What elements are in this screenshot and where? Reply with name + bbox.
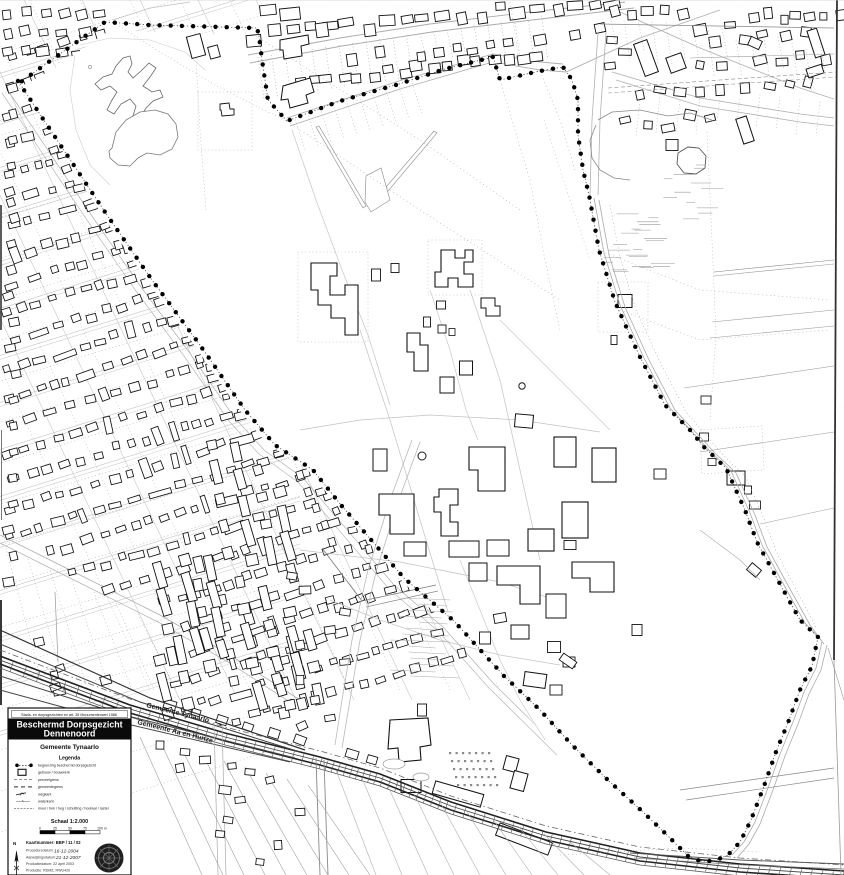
svg-text:100: 100 xyxy=(97,827,103,831)
svg-text:Productiedatum: 22 april 2003: Productiedatum: 22 april 2003 xyxy=(26,862,74,866)
svg-text:begrenzing beschermd dorpsgezi: begrenzing beschermd dorpsgezicht xyxy=(38,764,96,768)
svg-text:Gemeente Tynaarlo: Gemeente Tynaarlo xyxy=(40,744,99,751)
svg-text:Productie: RDMZ, RWU420: Productie: RDMZ, RWU420 xyxy=(26,869,70,873)
svg-text:Legenda: Legenda xyxy=(59,756,80,762)
svg-text:gebouw / bouwwerk: gebouw / bouwwerk xyxy=(38,771,70,775)
svg-text:Aanwijzingsdatum:: Aanwijzingsdatum: xyxy=(26,856,56,860)
svg-text:Proceduredatum:: Proceduredatum: xyxy=(26,849,54,853)
svg-text:perceelgrens: perceelgrens xyxy=(38,778,59,782)
svg-text:waterkant: waterkant xyxy=(38,800,54,804)
svg-text:25: 25 xyxy=(53,827,57,831)
svg-text:muur / hek / heg / schutting /: muur / hek / heg / schutting / houtwal /… xyxy=(38,807,110,811)
svg-text:Dennenoord: Dennenoord xyxy=(44,729,96,739)
svg-text:75: 75 xyxy=(83,827,87,831)
svg-text:gemeentegrens: gemeentegrens xyxy=(38,785,63,789)
svg-text:Stads- en dorpsgezichten ex ar: Stads- en dorpsgezichten ex art. 35 Monu… xyxy=(21,713,117,717)
svg-text:0: 0 xyxy=(39,827,41,831)
svg-text:Kaartnummer: BBP / 11 / 02: Kaartnummer: BBP / 11 / 02 xyxy=(26,840,81,845)
svg-text:Schaal 1:2.000: Schaal 1:2.000 xyxy=(51,819,88,825)
svg-text:wegkant: wegkant xyxy=(38,792,51,796)
svg-text:21-12-2007: 21-12-2007 xyxy=(55,855,81,861)
svg-text:m: m xyxy=(104,827,107,831)
svg-text:50: 50 xyxy=(68,827,72,831)
svg-text:16-12-2004: 16-12-2004 xyxy=(54,849,79,855)
